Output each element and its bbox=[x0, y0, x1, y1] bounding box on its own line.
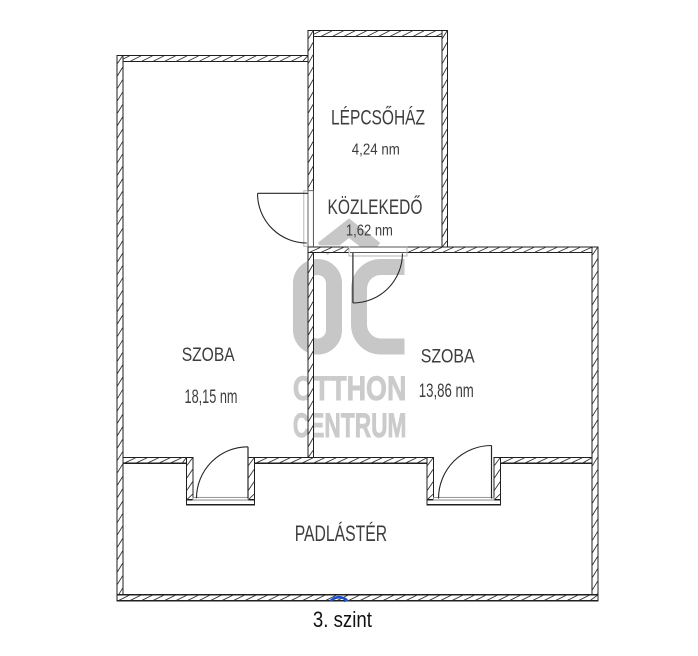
svg-text:13,86 nm: 13,86 nm bbox=[419, 381, 474, 402]
svg-text:3. szint: 3. szint bbox=[313, 607, 372, 632]
svg-text:PADLÁSTÉR: PADLÁSTÉR bbox=[295, 521, 387, 546]
svg-text:LÉPCSŐHÁZ: LÉPCSŐHÁZ bbox=[331, 106, 425, 129]
svg-text:SZOBA: SZOBA bbox=[182, 345, 235, 366]
svg-text:1,62 nm: 1,62 nm bbox=[346, 223, 393, 240]
svg-text:KÖZLEKEDŐ: KÖZLEKEDŐ bbox=[328, 196, 423, 219]
svg-text:4,24 nm: 4,24 nm bbox=[352, 142, 400, 159]
svg-text:18,15 nm: 18,15 nm bbox=[185, 387, 238, 408]
svg-text:SZOBA: SZOBA bbox=[421, 347, 475, 368]
